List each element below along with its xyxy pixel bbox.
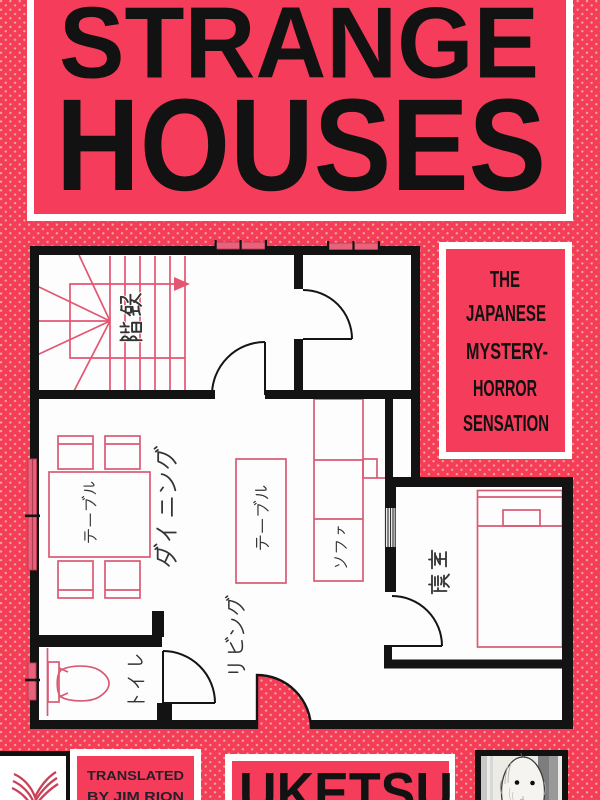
svg-text:HOUSES: HOUSES [56,71,546,218]
svg-text:THE: THE [490,266,520,292]
svg-text:BY JIM RION: BY JIM RION [87,789,184,800]
svg-text:JAPANESE: JAPANESE [466,300,546,326]
svg-text:TRANSLATED: TRANSLATED [87,768,184,783]
svg-text:UKETSU: UKETSU [239,761,453,800]
svg-text:SENSATION: SENSATION [463,410,549,436]
svg-text:MYSTERY-: MYSTERY- [466,338,548,364]
svg-text:HORROR: HORROR [473,375,537,401]
